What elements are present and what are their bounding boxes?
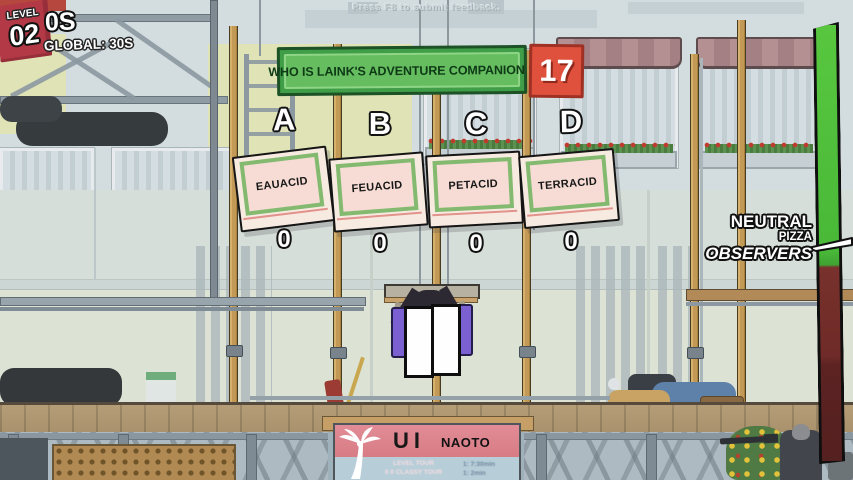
pole-clamp: [687, 347, 704, 359]
bystander-head: [792, 424, 810, 440]
vote-count-a: 0: [262, 226, 306, 254]
lattice-panel: [52, 444, 236, 480]
vote-count-b: 0: [358, 230, 402, 258]
truss-post: [536, 434, 547, 480]
palm-tree-icon: [337, 426, 383, 480]
answer-label-a: EAUACID: [244, 157, 320, 211]
question-text: WHO IS LAINK'S ADVENTURE COMPANION ?: [268, 62, 536, 78]
billboard-fineprint: 1: 2min: [463, 470, 486, 477]
billboard-title-right: NAOTO: [441, 435, 490, 450]
question-countdown-value: 17: [539, 53, 574, 89]
pole-clamp: [226, 345, 243, 357]
answer-letter-b: B: [358, 106, 402, 142]
pizza-box-sign-d[interactable]: TERRACID: [518, 148, 620, 229]
pizza-box-sign-a[interactable]: EAUACID: [232, 145, 336, 232]
question-banner: WHO IS LAINK'S ADVENTURE COMPANION ?: [277, 45, 527, 96]
window: [700, 64, 818, 168]
white-placard-right: [431, 304, 461, 376]
answer-letter-c: C: [454, 106, 499, 143]
gauge-needle-icon: [806, 236, 853, 253]
billboard-fineprint: 1: 7:30min: [463, 461, 495, 468]
answer-label-d: TERRACID: [530, 159, 605, 208]
feedback-hint: Press F8 to submit feedback.: [0, 2, 853, 13]
pole-clamp: [519, 346, 536, 358]
truss-post: [646, 434, 657, 480]
pizza-box-sign-c[interactable]: PETACID: [425, 151, 524, 229]
billboard-title-left: UI: [393, 428, 425, 454]
cable: [419, 0, 421, 286]
guardrail: [0, 297, 366, 306]
clutter-bags: [0, 368, 122, 406]
round-timer: 0S: [45, 7, 77, 37]
pole-clamp: [330, 347, 347, 359]
player-character[interactable]: [380, 278, 480, 378]
wall-edge: [94, 148, 96, 280]
billboard: UI NAOTO LEVEL TOUR 0 0 CLASSY TOUR 1: 7…: [333, 423, 521, 480]
gauge-label: NEUTRAL PIZZA OBSERVERS: [680, 212, 812, 263]
question-countdown: 17: [529, 44, 585, 99]
scaffold-post: [210, 0, 218, 304]
pizza-box-face: EAUACID: [239, 153, 324, 216]
flower-box: [701, 151, 817, 169]
cable: [447, 0, 449, 286]
pizza-box-lip: [432, 210, 517, 224]
dark-block: [0, 438, 48, 480]
white-placard-left: [404, 306, 434, 378]
pizza-box-sign-b[interactable]: FEUACID: [328, 151, 429, 232]
guardrail: [0, 307, 364, 311]
awning: [696, 37, 822, 69]
answer-label-c: PETACID: [437, 161, 510, 208]
answer-letter-a: A: [261, 101, 306, 139]
game-screen: Press F8 to submit feedback. LEVEL 02 0S…: [0, 0, 853, 480]
pizza-box-face: PETACID: [432, 157, 514, 212]
deck-rail: [250, 396, 610, 400]
billboard-fineprint: LEVEL TOUR: [393, 460, 434, 467]
truss-post: [246, 434, 257, 480]
prop-rifle-stock: [764, 434, 778, 444]
vote-count-d: 0: [549, 228, 593, 256]
pizza-box-face: FEUACID: [336, 158, 419, 216]
clutter-kettle: [608, 378, 620, 390]
gauge-label-line2: PIZZA: [680, 231, 812, 244]
gauge-label-line1: NEUTRAL: [680, 212, 812, 231]
vote-count-c: 0: [454, 230, 498, 258]
billboard-fineprint: 0 0 CLASSY TOUR: [385, 469, 442, 476]
answer-label-b: FEUACID: [340, 162, 414, 211]
answer-letter-d: D: [549, 104, 594, 141]
wall-joint: [647, 190, 650, 403]
pizza-box-face: TERRACID: [525, 155, 609, 213]
sandbags: [0, 96, 62, 122]
global-timer: GLOBAL: 30S: [44, 35, 134, 53]
gauge-label-line3: OBSERVERS: [680, 244, 812, 263]
question-panel: WHO IS LAINK'S ADVENTURE COMPANION ?: [284, 52, 520, 89]
